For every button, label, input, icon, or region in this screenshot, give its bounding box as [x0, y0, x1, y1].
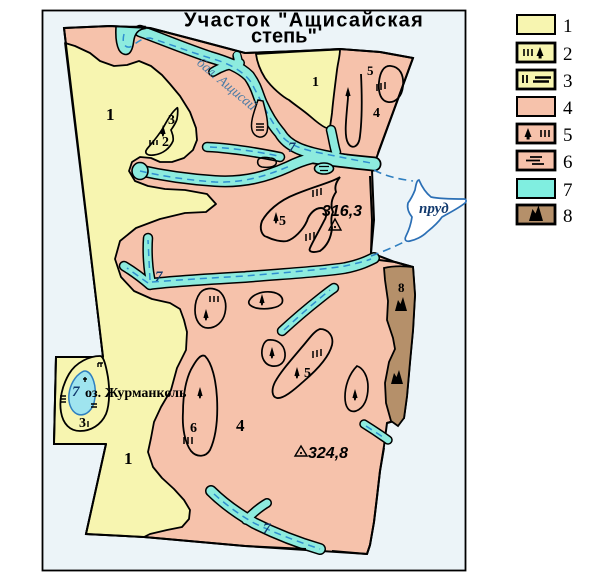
svg-text:пруд: пруд [419, 201, 449, 217]
svg-text:7: 7 [563, 180, 573, 201]
svg-text:3: 3 [563, 71, 573, 92]
svg-text:5: 5 [563, 125, 573, 146]
svg-text:3: 3 [79, 416, 86, 431]
svg-text:1: 1 [312, 75, 319, 90]
svg-text:2: 2 [162, 135, 169, 150]
svg-text:1: 1 [563, 16, 573, 37]
svg-text:5: 5 [279, 214, 286, 229]
svg-text:6: 6 [190, 421, 197, 436]
svg-text:5: 5 [304, 366, 311, 381]
svg-text:7: 7 [72, 384, 80, 400]
svg-text:1: 1 [124, 449, 133, 468]
svg-text:3: 3 [168, 113, 175, 128]
svg-text:7: 7 [288, 140, 296, 156]
svg-text:8: 8 [398, 280, 405, 295]
svg-text:324,8: 324,8 [308, 445, 348, 462]
svg-text:7: 7 [155, 269, 163, 285]
svg-text:7: 7 [263, 521, 271, 537]
svg-text:степь": степь" [251, 26, 317, 48]
svg-text:4: 4 [373, 106, 380, 121]
svg-text:оз. Журманколь: оз. Журманколь [85, 386, 187, 401]
svg-text:5: 5 [367, 63, 374, 78]
svg-text:316,3: 316,3 [322, 203, 362, 220]
svg-text:6: 6 [563, 152, 573, 173]
svg-text:4: 4 [563, 98, 573, 119]
svg-text:4: 4 [236, 416, 245, 435]
svg-text:1: 1 [106, 105, 115, 124]
svg-text:2: 2 [563, 44, 573, 65]
svg-text:8: 8 [563, 206, 573, 227]
